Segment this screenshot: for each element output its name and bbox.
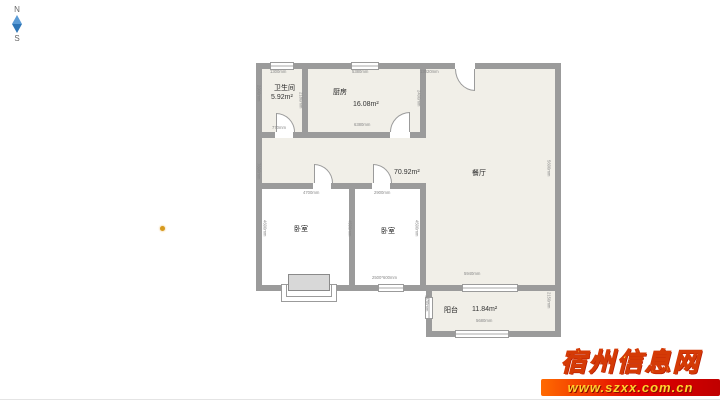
floor-plan: 卫生间5.92m²厨房16.08m²餐厅70.92m²卧室卧室阳台11.84m²… bbox=[256, 60, 562, 340]
window-bathroom-top bbox=[270, 62, 294, 70]
wall-bedroom2-right bbox=[420, 183, 426, 285]
dimension-label: 770mm bbox=[272, 126, 286, 130]
door-gap-kitchen bbox=[390, 132, 410, 138]
window-dining-balcony bbox=[462, 284, 518, 292]
dimension-label: 13020mm bbox=[420, 70, 439, 74]
dimension-label: 2900mm bbox=[256, 85, 260, 101]
dimension-label: 1430mm bbox=[424, 295, 428, 311]
dimension-label: 4500mm bbox=[347, 220, 351, 236]
compass: N S bbox=[8, 5, 26, 43]
room-name-label: 卧室 bbox=[381, 226, 395, 236]
dimension-label: 1300mm bbox=[270, 70, 286, 74]
dimension-label: 2150mm bbox=[546, 292, 550, 308]
dimension-label: 2500*600mm bbox=[372, 276, 397, 280]
window-bedroom2-bottom bbox=[378, 284, 404, 292]
dimension-label: 4600mm bbox=[262, 220, 266, 236]
watermark-url: www.szxx.com.cn bbox=[568, 380, 694, 395]
door-gap-bedroom-1 bbox=[313, 183, 331, 189]
dimension-label: 5600mm bbox=[546, 160, 550, 176]
dimension-label: 5680mm bbox=[476, 319, 492, 323]
wall-bedrooms-top bbox=[256, 183, 426, 189]
orange-marker-dot bbox=[160, 226, 165, 231]
room-area-label: 16.08m² bbox=[353, 101, 379, 108]
room-name-label: 阳台 bbox=[444, 305, 458, 315]
compass-north-label: N bbox=[8, 5, 26, 14]
room-area-label: 11.84m² bbox=[472, 306, 497, 313]
dimension-label: 5380mm bbox=[352, 70, 368, 74]
floor-bedroom-1 bbox=[262, 189, 349, 285]
window-kitchen-top bbox=[351, 62, 379, 70]
window-balcony-bottom bbox=[455, 330, 509, 338]
room-name-label: 卫生间 bbox=[274, 83, 295, 93]
room-name-label: 厨房 bbox=[333, 87, 347, 97]
watermark-site-name: 宿州信息网 bbox=[541, 349, 720, 378]
dimension-label: 4500mm bbox=[414, 220, 418, 236]
compass-needle-icon bbox=[12, 15, 22, 33]
room-name-label: 餐厅 bbox=[472, 168, 486, 178]
dimension-label: 2400mm bbox=[416, 90, 420, 106]
dimension-label: 2180mm bbox=[298, 92, 302, 108]
dimension-label: 4700mm bbox=[303, 191, 319, 195]
compass-south-label: S bbox=[8, 34, 26, 43]
wall-kitchen-right bbox=[420, 63, 426, 138]
watermark-url-banner: www.szxx.com.cn bbox=[541, 379, 720, 396]
door-gap-bathroom bbox=[275, 132, 293, 138]
room-area-label: 70.92m² bbox=[394, 169, 420, 176]
wall-bathroom-kitchen bbox=[302, 63, 308, 138]
page-bottom-divider bbox=[0, 399, 720, 400]
wall-right bbox=[555, 63, 561, 337]
dimension-label: 7600mm bbox=[256, 163, 260, 179]
watermark: 宿州信息网 www.szxx.com.cn bbox=[541, 349, 720, 399]
dimension-label: 5940mm bbox=[464, 272, 480, 276]
room-area-label: 5.92m² bbox=[271, 94, 293, 101]
door-gap-bedroom-2 bbox=[372, 183, 390, 189]
room-name-label: 卧室 bbox=[294, 224, 308, 234]
dimension-label: 6380mm bbox=[354, 123, 370, 127]
floor-bedroom-2 bbox=[355, 189, 420, 285]
dimension-label: 2900mm bbox=[374, 191, 390, 195]
bay-window-sill bbox=[288, 274, 330, 291]
